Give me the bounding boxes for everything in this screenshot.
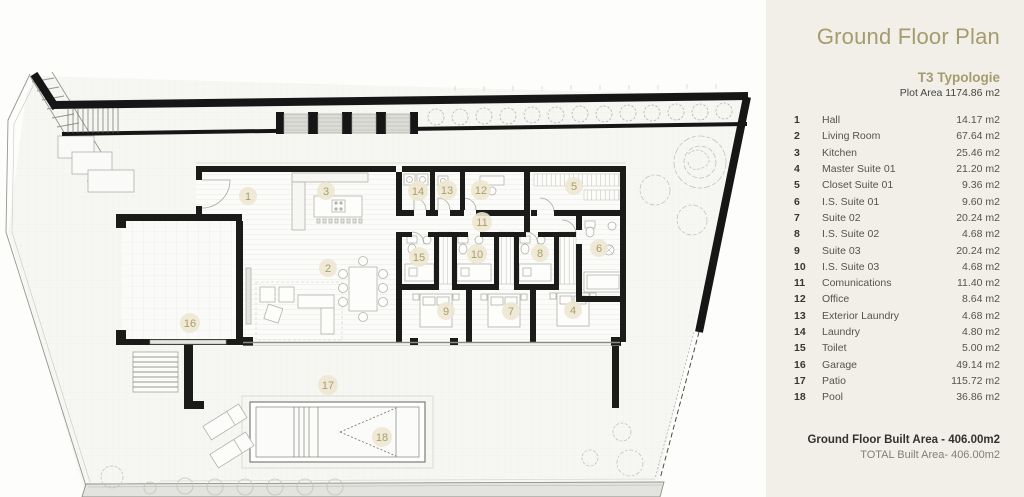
garden-stairs (133, 352, 178, 392)
svg-text:4: 4 (570, 305, 576, 317)
room-area-table: 1Hall14.17 m22Living Room67.64 m23Kitche… (780, 112, 1000, 405)
room-area: 4.68 m2 (962, 310, 1000, 322)
room-label-6: 6 (590, 239, 608, 257)
room-number: 11 (780, 277, 818, 289)
room-label-1: 1 (239, 187, 257, 205)
svg-text:11: 11 (476, 217, 487, 229)
louver-gates (276, 112, 418, 134)
room-row: 7Suite 0220.24 m2 (780, 210, 1000, 226)
south-sidewalk (82, 482, 664, 497)
svg-text:5: 5 (571, 181, 577, 193)
room-name: Toilet (818, 342, 962, 354)
floor-plan: 123456789101112131415161718 (0, 0, 772, 497)
room-area: 20.24 m2 (956, 245, 1000, 257)
room-row: 13Exterior Laundry4.68 m2 (780, 308, 1000, 324)
room-area: 4.80 m2 (962, 326, 1000, 338)
svg-text:17: 17 (322, 380, 334, 392)
svg-text:2: 2 (325, 263, 331, 275)
room-area: 49.14 m2 (956, 359, 1000, 371)
room-area: 5.00 m2 (962, 342, 1000, 354)
room-name: I.S. Suite 03 (818, 261, 962, 273)
room-name: Pool (818, 391, 956, 403)
room-number: 3 (780, 147, 818, 159)
room-name: Office (818, 293, 962, 305)
svg-text:14: 14 (412, 186, 424, 198)
room-number: 9 (780, 245, 818, 257)
room-number: 12 (780, 293, 818, 305)
info-panel: Ground Floor Plan T3 Typologie Plot Area… (766, 0, 1024, 497)
room-number: 14 (780, 326, 818, 338)
typology-label: T3 Typologie (780, 70, 1000, 85)
room-area: 4.68 m2 (962, 228, 1000, 240)
room-number: 16 (780, 359, 818, 371)
floor-plan-svg: 123456789101112131415161718 (0, 0, 768, 497)
room-name: Garage (818, 359, 956, 371)
room-number: 6 (780, 196, 818, 208)
svg-text:9: 9 (443, 306, 449, 318)
total-built-area: TOTAL Built Area- 406.00m2 (780, 449, 1000, 461)
room-number: 2 (780, 130, 818, 142)
room-area: 36.86 m2 (956, 391, 1000, 403)
room-label-10: 10 (467, 244, 487, 264)
room-label-2: 2 (319, 259, 337, 277)
svg-text:8: 8 (537, 248, 543, 260)
room-row: 10I.S. Suite 034.68 m2 (780, 259, 1000, 275)
room-area: 115.72 m2 (951, 375, 1000, 387)
drawing-sheet: 123456789101112131415161718 Ground Floor… (0, 0, 1024, 497)
room-name: Closet Suite 01 (818, 179, 962, 191)
room-number: 18 (780, 391, 818, 403)
room-label-3: 3 (317, 182, 335, 200)
room-area: 67.64 m2 (956, 130, 1000, 142)
room-row: 3Kitchen25.46 m2 (780, 145, 1000, 161)
room-label-5: 5 (565, 177, 583, 195)
room-name: Exterior Laundry (818, 310, 962, 322)
room-row: 17Patio115.72 m2 (780, 373, 1000, 389)
room-area: 20.24 m2 (956, 212, 1000, 224)
svg-text:13: 13 (441, 185, 453, 197)
garage-floor (122, 221, 236, 339)
room-label-12: 12 (471, 180, 491, 200)
room-number: 5 (780, 179, 818, 191)
plot-area-label: Plot Area 1174.86 m2 (780, 87, 1000, 99)
svg-text:18: 18 (376, 432, 388, 444)
room-name: Hall (818, 114, 956, 126)
svg-text:12: 12 (475, 185, 487, 197)
area-totals: Ground Floor Built Area - 406.00m2 TOTAL… (780, 434, 1000, 461)
room-area: 11.40 m2 (957, 277, 1000, 289)
room-row: 9Suite 0320.24 m2 (780, 242, 1000, 258)
room-area: 9.60 m2 (962, 196, 1000, 208)
room-label-14: 14 (408, 181, 428, 201)
svg-text:3: 3 (323, 186, 329, 198)
room-name: I.S. Suite 01 (818, 196, 962, 208)
room-name: Suite 03 (818, 245, 956, 257)
room-number: 1 (780, 114, 818, 126)
room-number: 13 (780, 310, 818, 322)
room-name: Laundry (818, 326, 962, 338)
room-row: 6I.S. Suite 019.60 m2 (780, 193, 1000, 209)
room-name: Suite 02 (818, 212, 956, 224)
room-name: Kitchen (818, 147, 956, 159)
room-number: 4 (780, 163, 818, 175)
svg-text:1: 1 (245, 191, 251, 203)
svg-text:15: 15 (413, 252, 425, 264)
room-row: 12Office8.64 m2 (780, 291, 1000, 307)
room-area: 14.17 m2 (956, 114, 1000, 126)
garage-door (150, 340, 226, 344)
room-name: Master Suite 01 (818, 163, 956, 175)
room-label-11: 11 (472, 212, 492, 232)
room-row: 18Pool36.86 m2 (780, 389, 1000, 405)
room-label-17: 17 (318, 375, 338, 395)
svg-text:6: 6 (596, 243, 602, 255)
room-label-9: 9 (437, 302, 455, 320)
room-area: 9.36 m2 (962, 179, 1000, 191)
room-row: 14Laundry4.80 m2 (780, 324, 1000, 340)
room-row: 2Living Room67.64 m2 (780, 128, 1000, 144)
room-row: 11Comunications11.40 m2 (780, 275, 1000, 291)
room-area: 25.46 m2 (956, 147, 1000, 159)
room-label-13: 13 (437, 180, 457, 200)
room-name: I.S. Suite 02 (818, 228, 962, 240)
page-title: Ground Floor Plan (780, 24, 1000, 50)
room-area: 4.68 m2 (962, 261, 1000, 273)
room-label-7: 7 (502, 302, 520, 320)
room-name: Comunications (818, 277, 957, 289)
svg-text:16: 16 (184, 318, 196, 330)
room-row: 1Hall14.17 m2 (780, 112, 1000, 128)
room-label-16: 16 (180, 313, 200, 333)
room-row: 16Garage49.14 m2 (780, 356, 1000, 372)
room-label-8: 8 (531, 244, 549, 262)
room-label-15: 15 (409, 247, 429, 267)
room-label-4: 4 (564, 301, 582, 319)
room-area: 21.20 m2 (956, 163, 1000, 175)
svg-text:7: 7 (508, 306, 514, 318)
room-row: 15Toilet5.00 m2 (780, 340, 1000, 356)
room-number: 10 (780, 261, 818, 273)
svg-text:10: 10 (471, 249, 483, 261)
room-row: 4Master Suite 0121.20 m2 (780, 161, 1000, 177)
room-row: 5Closet Suite 019.36 m2 (780, 177, 1000, 193)
built-area-total: Ground Floor Built Area - 406.00m2 (780, 434, 1000, 446)
room-number: 8 (780, 228, 818, 240)
room-label-18: 18 (372, 427, 392, 447)
room-number: 17 (780, 375, 818, 387)
room-area: 8.64 m2 (962, 293, 1000, 305)
pool (242, 396, 433, 468)
room-name: Living Room (818, 130, 956, 142)
room-name: Patio (818, 375, 951, 387)
room-number: 15 (780, 342, 818, 354)
room-row: 8I.S. Suite 024.68 m2 (780, 226, 1000, 242)
room-number: 7 (780, 212, 818, 224)
